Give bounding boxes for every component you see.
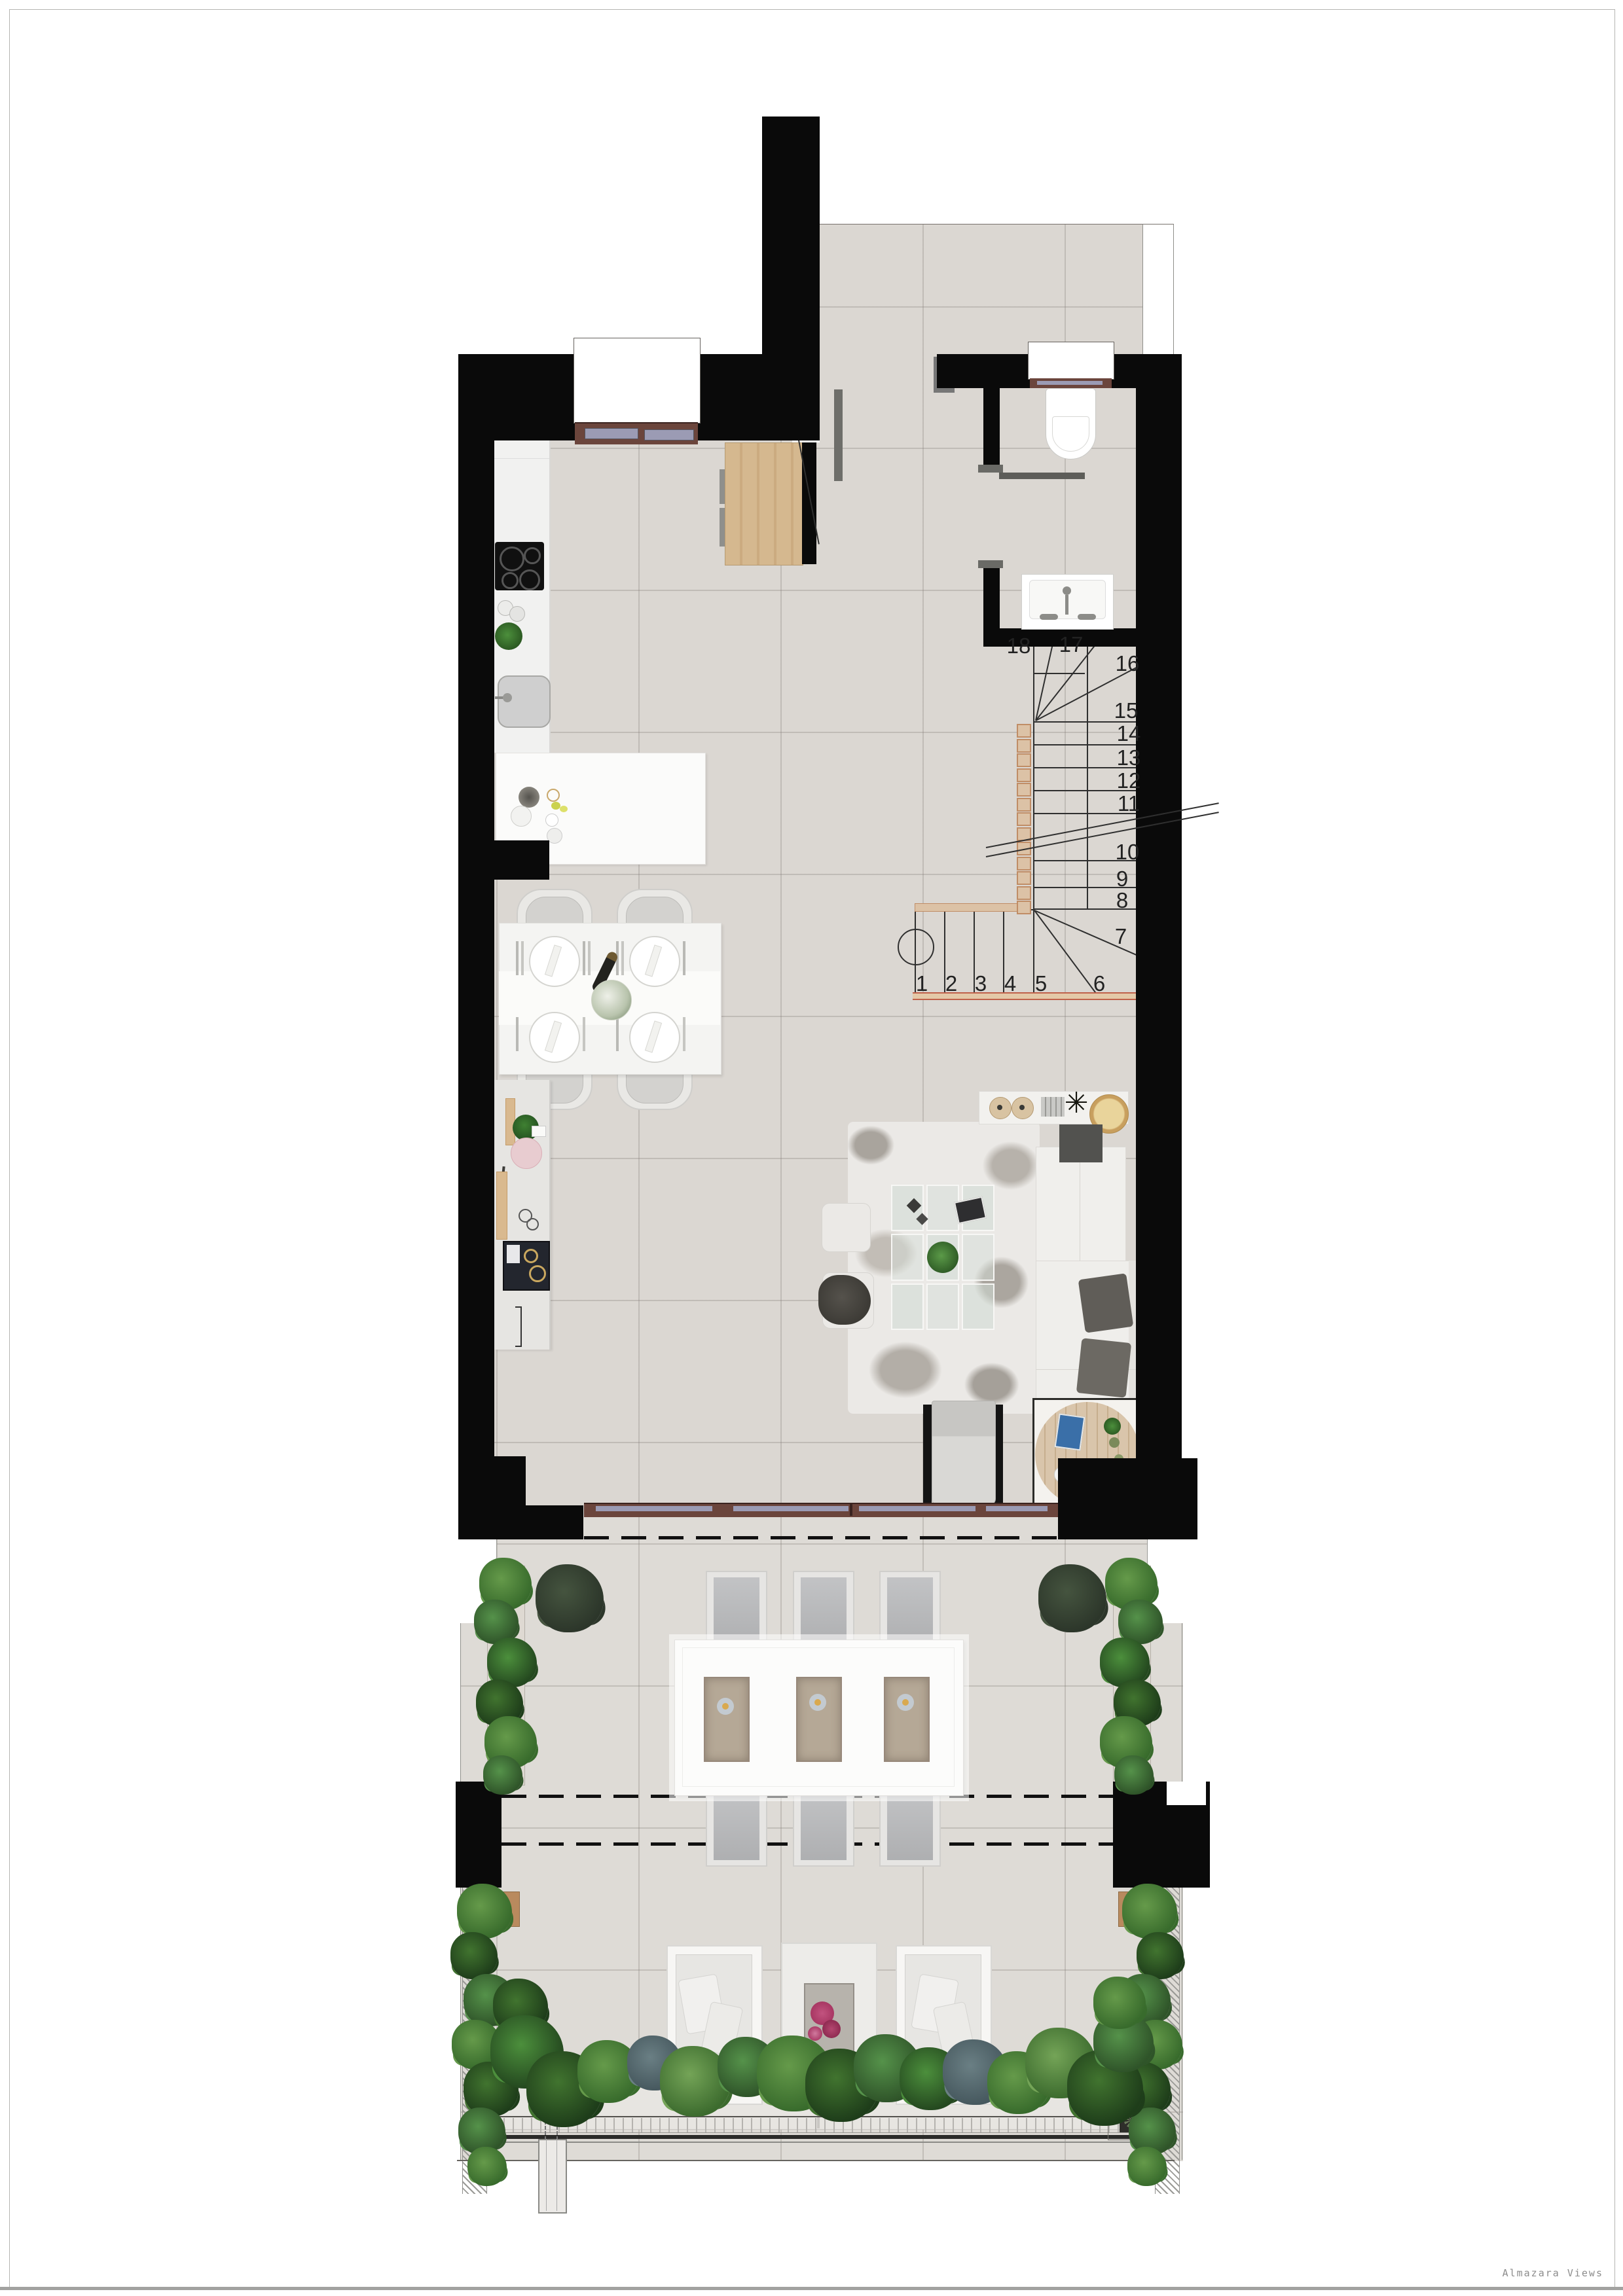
stair-short-tread: [1033, 673, 1085, 674]
wall-corner-right: [1058, 1458, 1197, 1539]
terrace-tray: [796, 1677, 842, 1762]
stair-left-line: [1033, 636, 1034, 910]
stair-mid-line: [1087, 636, 1088, 908]
island-flower-decor: [519, 787, 539, 808]
plant-blob: [450, 1932, 498, 1979]
plant-blob: [1137, 1932, 1184, 1979]
plant-blob: [467, 2147, 507, 2186]
stair-baluster: [1017, 739, 1031, 753]
island-plate: [511, 806, 532, 827]
stair-step-label: 13: [1117, 745, 1141, 770]
wall-toilet-stub: [983, 388, 1000, 470]
toilet-seat-line: [1052, 416, 1089, 452]
floorplan-page: ✳: [0, 0, 1623, 2296]
kitchen-window-glass: [644, 429, 694, 440]
side-table-magazine: [1055, 1413, 1085, 1450]
bush: [536, 1564, 604, 1632]
sliding-door-glass: [859, 1506, 976, 1511]
wall-top-kitchen-right: [697, 354, 764, 440]
stair-step-label: 17: [1059, 632, 1084, 657]
bottom-deck-ticks: [494, 2118, 1142, 2133]
cutlery: [583, 1017, 585, 1051]
sideboard-pink-tray: [511, 1138, 542, 1169]
side-table-leaf: [1104, 1418, 1121, 1435]
terrace-tray: [884, 1677, 930, 1762]
sink-handle: [1078, 614, 1096, 620]
stair-step-label: 3: [975, 971, 987, 996]
cutlery: [616, 1017, 619, 1051]
cooktop-burner: [500, 547, 524, 571]
glass-panel: [926, 1185, 959, 1231]
plant-blob: [1114, 1755, 1154, 1795]
cutlery: [588, 941, 591, 975]
stair-baluster: [1017, 798, 1031, 812]
sofa-pillow: [1078, 1273, 1134, 1333]
terrace-pillar-left: [456, 1782, 501, 1888]
terrace-chair-pad: [887, 1791, 933, 1860]
sideboard-handle-hook: [515, 1306, 522, 1308]
stair-step-label: 4: [1004, 971, 1016, 996]
plant-blob: [1093, 1977, 1146, 2029]
stair-step-label: 14: [1117, 721, 1141, 746]
cooktop-burner: [501, 572, 519, 589]
armchair-seat: [932, 1401, 996, 1505]
kitchen-counter-divider: [494, 458, 549, 459]
lounge-flowers: [822, 2020, 841, 2038]
wall-entry-chimney: [762, 117, 820, 440]
island-lemon: [551, 802, 560, 810]
cooktop-burner: [524, 547, 541, 564]
glass-panel: [926, 1283, 959, 1330]
bottom-rail-dark-band: [483, 2135, 1155, 2139]
terrace-chair-pad: [801, 1577, 847, 1647]
tray-gold-ring: [524, 1249, 538, 1263]
cutlery: [683, 941, 685, 975]
glass-panel: [891, 1234, 924, 1280]
sliding-door-glass: [986, 1506, 1048, 1511]
sofa-chaise: [1036, 1147, 1126, 1262]
wall-corner-left-b: [458, 1505, 583, 1539]
plant-blob: [1127, 2147, 1167, 2186]
plant-blob: [1122, 1884, 1177, 1939]
wall-pier-kitchen: [494, 840, 549, 880]
sofa-chaise-cushion-line: [1080, 1147, 1080, 1261]
console-disc-center: [997, 1105, 1002, 1110]
sink-faucet-dot: [1063, 586, 1071, 595]
coffee-table-plant: [927, 1242, 958, 1273]
pouf: [822, 1203, 871, 1252]
sink-faucet-stem: [1065, 595, 1068, 615]
foundation-post: [538, 2139, 567, 2214]
island-lemon: [560, 806, 568, 812]
pouf-throw-blanket: [818, 1275, 871, 1325]
stair-baluster: [1017, 753, 1031, 767]
kitchen-window-glass: [585, 428, 638, 439]
upper-void: [1142, 224, 1174, 356]
stair-step-label: 9: [1116, 867, 1128, 891]
plant-blob: [457, 1884, 512, 1939]
wall-top-kitchen-left: [458, 354, 576, 440]
stair-step-label: 15: [1114, 698, 1139, 723]
terrace-chair: [879, 1784, 941, 1867]
kitchen-faucet-head: [503, 693, 512, 702]
stair-baluster: [1017, 871, 1031, 885]
terrace-chair: [793, 1784, 854, 1867]
tray-candle-flame: [902, 1699, 909, 1706]
stair-step-label: 10: [1116, 840, 1140, 865]
cutlery: [583, 941, 585, 975]
kitchen-window: [574, 338, 701, 423]
stair-start-circle: [898, 929, 934, 965]
stair-step-label: 7: [1115, 924, 1127, 949]
sink-stub-cap: [978, 560, 1003, 568]
terrace-chair-pad: [714, 1791, 759, 1860]
wall-right: [1136, 388, 1182, 1458]
terrace-pillar-right-notch: [1167, 1782, 1206, 1805]
hallway-floor: [820, 224, 1142, 355]
stair-step-label: 11: [1118, 791, 1140, 816]
wardrobe-handle: [720, 508, 725, 547]
terrace-dashed-line: [584, 1536, 1057, 1539]
stair-handrail-tan: [915, 903, 1020, 912]
foundation-post-line: [556, 2139, 557, 2211]
terrace-tray: [704, 1677, 750, 1762]
kitchen-jar: [509, 606, 525, 622]
stair-step-label: 8: [1116, 888, 1128, 913]
sliding-door-glass: [733, 1506, 848, 1511]
cutlery: [683, 1017, 685, 1051]
bush: [1038, 1564, 1106, 1632]
stair-baluster: [1017, 783, 1031, 797]
sliding-door-glass: [596, 1506, 712, 1511]
sideboard-box: [532, 1126, 546, 1137]
glass-panel: [891, 1283, 924, 1330]
tray-candle-flame: [814, 1699, 821, 1706]
stair-step-label: 16: [1116, 651, 1140, 676]
page-bottom-bar: [0, 2287, 1623, 2290]
stair-baluster: [1017, 857, 1031, 870]
stair-step-label: 2: [945, 971, 957, 996]
stair-baluster: [1017, 886, 1031, 900]
stair-baluster: [1017, 901, 1031, 914]
stair-step-label: 6: [1093, 971, 1105, 996]
bottom-rail-gray-line: [483, 2142, 1155, 2143]
stair-baluster: [1017, 724, 1031, 738]
console-books: [1041, 1097, 1065, 1117]
island-cup: [545, 814, 558, 827]
kitchen-plant: [495, 622, 522, 650]
wardrobe: [725, 442, 803, 565]
plant-blob: [483, 1755, 522, 1795]
wall-entry-partition: [802, 442, 816, 564]
terrace-chair-pad: [801, 1791, 847, 1860]
toilet-door-leaf: [999, 473, 1085, 479]
console-spiky-plant: ✳: [1062, 1089, 1091, 1118]
armchair-rail: [923, 1405, 932, 1505]
sofa-corner-table: [1059, 1124, 1103, 1162]
console-disc-center: [1019, 1105, 1025, 1110]
sink-handle: [1040, 614, 1058, 620]
bathroom-window-glass: [1037, 381, 1103, 385]
stair-step-label: 5: [1035, 971, 1047, 996]
sofa-pillow: [1076, 1338, 1131, 1397]
island-coaster: [547, 789, 560, 802]
sliding-door-divider: [850, 1503, 852, 1516]
foundation-post-line: [546, 2139, 547, 2211]
stair-step-label: 1: [916, 971, 928, 996]
tray-card: [507, 1245, 520, 1263]
sideboard-handle-hook: [515, 1346, 522, 1347]
wall-left: [458, 354, 494, 1456]
bathroom-window: [1028, 342, 1114, 380]
cutlery: [516, 941, 519, 975]
wall-top-bath-right: [1112, 354, 1182, 388]
entry-door-leaf: [834, 389, 843, 481]
sideboard-ring: [526, 1218, 539, 1230]
wall-top-bath-left: [937, 354, 1030, 388]
tray-candle-flame: [722, 1703, 729, 1710]
cutlery: [516, 1017, 519, 1051]
stair-step-label: 12: [1117, 768, 1141, 793]
stair-lower-vline: [1033, 910, 1034, 995]
stair-step-label: 18: [1007, 634, 1031, 658]
terrace-chair-pad: [887, 1577, 933, 1647]
terrace-chair: [706, 1784, 767, 1867]
cutlery: [621, 941, 624, 975]
cooktop-burner: [519, 569, 540, 590]
cutlery: [521, 941, 524, 975]
toilet-stub-cap: [978, 465, 1003, 473]
centerpiece-flowers: [591, 980, 632, 1020]
side-table-candle: [1109, 1437, 1120, 1448]
glass-panel: [962, 1283, 994, 1330]
tray-gold-ring: [529, 1265, 546, 1282]
wardrobe-handle: [720, 469, 725, 504]
stair-baluster: [1017, 812, 1031, 826]
glass-panel: [962, 1234, 994, 1280]
project-credit: Almazara Views: [1503, 2267, 1603, 2279]
stair-baluster: [1017, 768, 1031, 782]
sideboard-wood-board: [496, 1172, 507, 1240]
terrace-chair-pad: [714, 1577, 759, 1647]
sideboard-handle: [520, 1306, 522, 1347]
